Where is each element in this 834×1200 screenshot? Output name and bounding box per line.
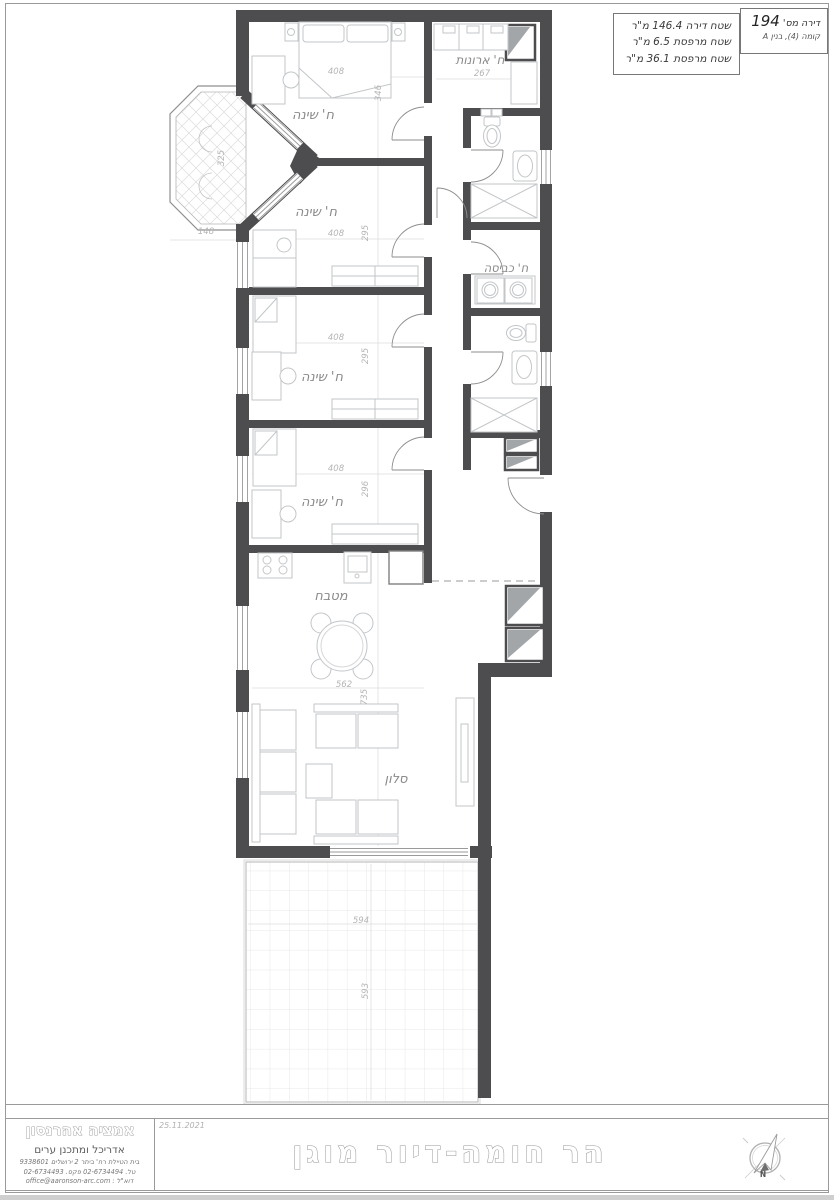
label-laundry: ח' כביסה <box>484 261 529 275</box>
svg-text:346: 346 <box>374 84 384 101</box>
svg-text:295: 295 <box>361 225 371 241</box>
shafts <box>505 25 544 661</box>
label-bedroom-4: ח' שינה <box>301 495 344 510</box>
entry-door <box>508 478 544 514</box>
svg-text:408: 408 <box>328 464 345 474</box>
svg-text:148: 148 <box>198 227 215 237</box>
svg-text:593: 593 <box>361 983 371 999</box>
bathroom-2 <box>471 324 537 432</box>
terrace-balcony <box>244 860 480 1104</box>
area-apartment: שטח דירה 146.4 מ"ר <box>622 18 731 34</box>
label-living: סלון <box>385 772 408 787</box>
north-letter: N <box>760 1170 766 1179</box>
octagon-balcony <box>170 86 246 240</box>
sheet-bottom-strip <box>0 1195 834 1200</box>
floor-building-line: קומה (4), בנין A <box>745 32 820 41</box>
label-kitchen: מטבח <box>314 589 348 604</box>
svg-text:562: 562 <box>336 680 352 690</box>
bedroom3-furniture <box>252 296 418 419</box>
svg-text:296: 296 <box>361 480 371 497</box>
svg-text:408: 408 <box>328 229 345 239</box>
area-balcony-2: שטח מרפסת 36.1 מ"ר <box>622 51 731 67</box>
svg-text:408: 408 <box>328 333 345 343</box>
label-bedroom-2: ח' שינה <box>295 205 338 220</box>
label-bedroom-1: ח' שינה <box>292 108 335 123</box>
svg-text:325: 325 <box>217 150 227 166</box>
svg-text:408: 408 <box>328 67 345 77</box>
label-bedroom-3: ח' שינה <box>301 370 344 385</box>
apartment-label: דירה מס' <box>783 18 820 29</box>
dining-table <box>311 613 373 679</box>
label-closet-room: ח' ארונות <box>456 53 505 67</box>
apartment-number-line: דירה מס' 194 <box>745 12 820 30</box>
laundry-machines <box>475 276 535 304</box>
kitchen-counter <box>258 551 423 584</box>
svg-text:594: 594 <box>353 916 369 926</box>
drawing-sheet: ח' שינה ח' שינה ח' שינה ח' שינה ח' ארונו… <box>0 0 834 1200</box>
floor-plan: ח' שינה ח' שינה ח' שינה ח' שינה ח' ארונו… <box>0 0 834 1115</box>
project-title: הר חומה-דיור מוגן <box>292 1135 607 1169</box>
svg-text:267: 267 <box>474 69 491 79</box>
titleblock-graphics: הר חומה-דיור מוגן N <box>0 1105 834 1200</box>
area-info-box: שטח דירה 146.4 מ"ר שטח מרפסת 6.5 מ"ר שטח… <box>613 13 740 75</box>
svg-text:735: 735 <box>360 689 370 705</box>
apartment-info-box: דירה מס' 194 קומה (4), בנין A <box>740 8 828 54</box>
apartment-number: 194 <box>751 12 780 30</box>
bathroom-1 <box>471 109 537 218</box>
bedroom4-furniture <box>252 429 418 544</box>
north-compass-icon: N <box>743 1134 785 1180</box>
area-balcony-1: שטח מרפסת 6.5 מ"ר <box>622 34 731 50</box>
svg-text:295: 295 <box>361 348 371 364</box>
living-room-furniture <box>252 698 474 844</box>
